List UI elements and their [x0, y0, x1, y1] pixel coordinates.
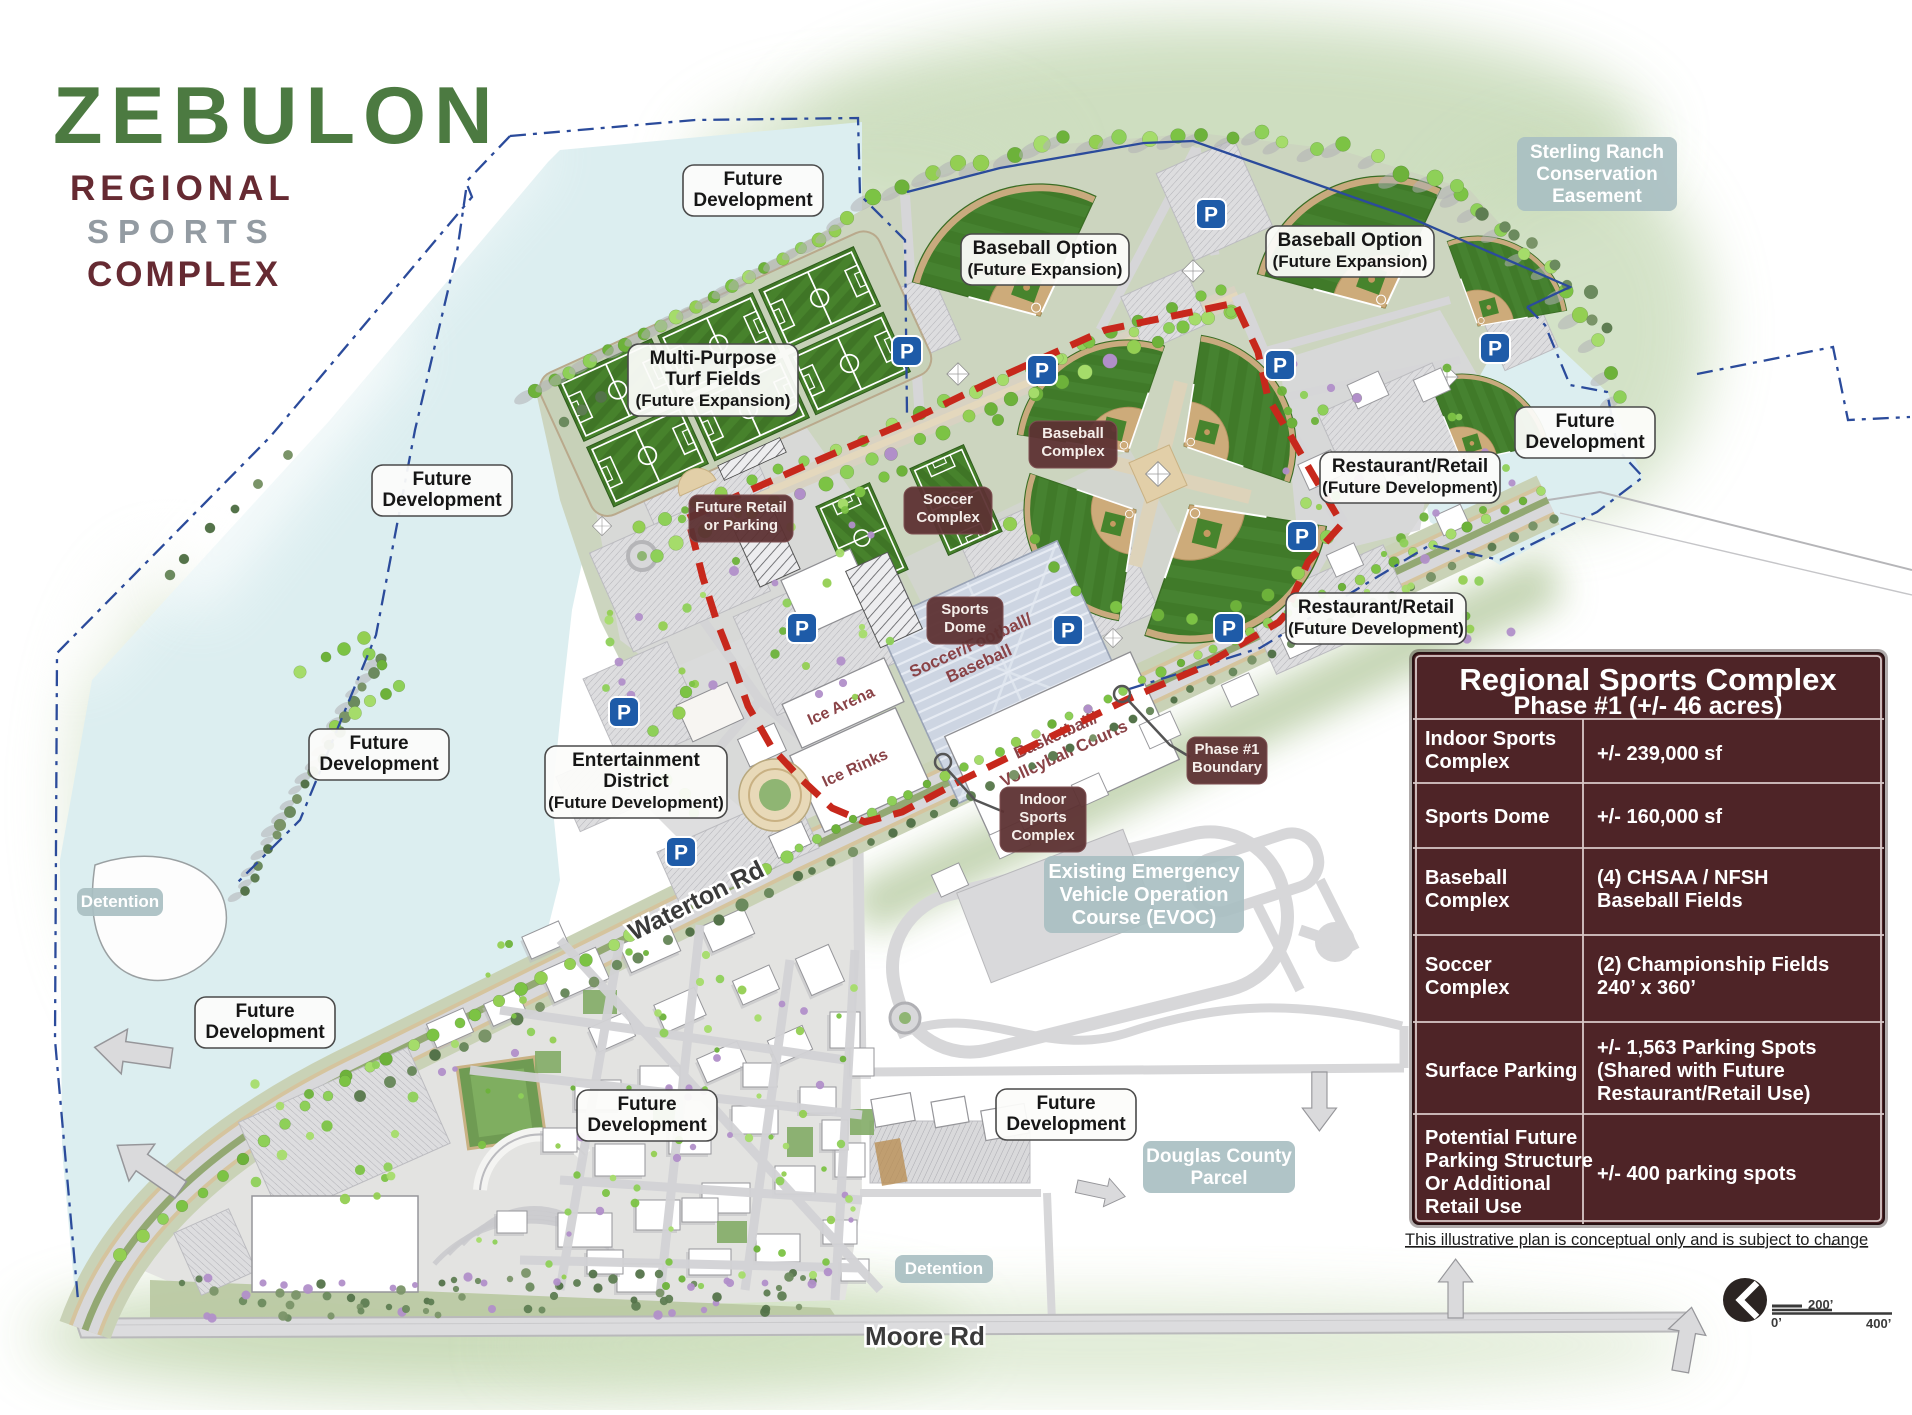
svg-text:(Shared with Future: (Shared with Future: [1597, 1060, 1785, 1082]
svg-text:Or Additional: Or Additional: [1425, 1173, 1551, 1195]
svg-text:Complex: Complex: [1011, 827, 1075, 844]
svg-text:Future: Future: [1555, 411, 1614, 432]
svg-text:Baseball: Baseball: [1425, 867, 1507, 889]
svg-text:Future: Future: [723, 169, 782, 190]
svg-text:Future: Future: [617, 1094, 676, 1115]
svg-text:Soccer: Soccer: [923, 491, 973, 508]
svg-text:Sports: Sports: [1019, 809, 1067, 826]
svg-text:+/- 1,563 Parking Spots: +/- 1,563 Parking Spots: [1597, 1037, 1817, 1059]
svg-text:Baseball Fields: Baseball Fields: [1597, 890, 1743, 912]
svg-text:SPORTS: SPORTS: [87, 213, 277, 250]
svg-text:+/- 400 parking spots: +/- 400 parking spots: [1597, 1163, 1797, 1185]
svg-text:Complex: Complex: [1425, 890, 1509, 912]
svg-text:Phase #1 (+/- 46 acres): Phase #1 (+/- 46 acres): [1514, 692, 1783, 720]
svg-text:.: .: [1830, 1231, 1835, 1249]
svg-text:240’ x 360’: 240’ x 360’: [1597, 977, 1696, 999]
svg-text:Development: Development: [693, 190, 813, 211]
svg-text:400’: 400’: [1866, 1316, 1891, 1331]
svg-text:+/- 239,000 sf: +/- 239,000 sf: [1597, 743, 1722, 765]
svg-text:Restaurant/Retail Use): Restaurant/Retail Use): [1597, 1083, 1810, 1105]
svg-text:Complex: Complex: [916, 509, 980, 526]
svg-text:Dome: Dome: [944, 619, 986, 636]
svg-text:Future: Future: [349, 733, 408, 754]
svg-text:Multi-Purpose: Multi-Purpose: [650, 348, 777, 369]
svg-text:Complex: Complex: [1041, 443, 1105, 460]
svg-text:Detention: Detention: [905, 1259, 983, 1278]
svg-text:Surface Parking: Surface Parking: [1425, 1060, 1577, 1082]
svg-text:or Parking: or Parking: [704, 517, 778, 534]
svg-text:Turf Fields: Turf Fields: [665, 369, 761, 390]
svg-text:Soccer: Soccer: [1425, 954, 1492, 976]
svg-text:Future: Future: [412, 469, 471, 490]
svg-text:Indoor Sports: Indoor Sports: [1425, 728, 1556, 750]
svg-text:Baseball: Baseball: [1042, 425, 1104, 442]
svg-text:Detention: Detention: [81, 892, 159, 911]
svg-text:This illustrative plan is conc: This illustrative plan is conceptual onl…: [1405, 1231, 1868, 1249]
svg-text:(Future Expansion): (Future Expansion): [1273, 252, 1428, 271]
svg-text:Complex: Complex: [1425, 751, 1509, 773]
svg-text:Retail Use: Retail Use: [1425, 1196, 1522, 1218]
svg-text:(Future Expansion): (Future Expansion): [968, 260, 1123, 279]
svg-text:Indoor: Indoor: [1020, 791, 1067, 808]
svg-text:Restaurant/Retail: Restaurant/Retail: [1332, 456, 1488, 477]
svg-text:Development: Development: [382, 490, 502, 511]
svg-text:COMPLEX: COMPLEX: [87, 255, 281, 294]
svg-text:District: District: [603, 771, 669, 792]
svg-text:(Future Expansion): (Future Expansion): [636, 391, 791, 410]
svg-text:200’: 200’: [1808, 1297, 1833, 1312]
svg-text:Future: Future: [235, 1001, 294, 1022]
svg-text:Sports: Sports: [941, 601, 989, 618]
svg-text:ZEBULON: ZEBULON: [53, 71, 500, 161]
svg-text:Sterling Ranch: Sterling Ranch: [1530, 142, 1664, 163]
svg-text:Parcel: Parcel: [1190, 1168, 1247, 1189]
svg-text:Boundary: Boundary: [1192, 759, 1263, 776]
svg-text:Baseball Option: Baseball Option: [1278, 230, 1423, 251]
svg-text:Entertainment: Entertainment: [572, 750, 700, 771]
svg-text:(Future Development): (Future Development): [1288, 619, 1464, 638]
svg-text:Conservation: Conservation: [1536, 164, 1657, 185]
svg-text:Easement: Easement: [1552, 186, 1642, 207]
svg-text:Sports Dome: Sports Dome: [1425, 806, 1549, 828]
svg-text:Douglas County: Douglas County: [1146, 1146, 1292, 1167]
svg-text:Development: Development: [1006, 1114, 1126, 1135]
svg-text:Development: Development: [587, 1115, 707, 1136]
svg-text:Potential Future: Potential Future: [1425, 1127, 1577, 1149]
svg-text:Complex: Complex: [1425, 977, 1509, 999]
svg-text:Development: Development: [1525, 432, 1645, 453]
svg-text:Vehicle Operation: Vehicle Operation: [1060, 884, 1229, 906]
svg-text:Baseball Option: Baseball Option: [973, 238, 1118, 259]
svg-text:+/- 160,000 sf: +/- 160,000 sf: [1597, 806, 1722, 828]
svg-text:Development: Development: [205, 1022, 325, 1043]
svg-text:REGIONAL: REGIONAL: [70, 169, 295, 208]
svg-text:0’: 0’: [1771, 1315, 1782, 1330]
svg-text:Phase #1: Phase #1: [1194, 741, 1259, 758]
svg-text:(2) Championship Fields: (2) Championship Fields: [1597, 954, 1829, 976]
svg-text:Course (EVOC): Course (EVOC): [1072, 907, 1216, 929]
svg-text:Moore Rd: Moore Rd: [865, 1321, 985, 1351]
svg-text:Future: Future: [1036, 1093, 1095, 1114]
svg-text:(4) CHSAA / NFSH: (4) CHSAA / NFSH: [1597, 867, 1768, 889]
svg-text:Restaurant/Retail: Restaurant/Retail: [1298, 597, 1454, 618]
svg-text:Future Retail: Future Retail: [695, 499, 787, 516]
svg-text:Existing Emergency: Existing Emergency: [1048, 861, 1240, 883]
svg-text:Development: Development: [319, 754, 439, 775]
svg-text:(Future Development): (Future Development): [548, 793, 724, 812]
svg-text:(Future Development): (Future Development): [1322, 478, 1498, 497]
svg-text:Parking Structure: Parking Structure: [1425, 1150, 1593, 1172]
